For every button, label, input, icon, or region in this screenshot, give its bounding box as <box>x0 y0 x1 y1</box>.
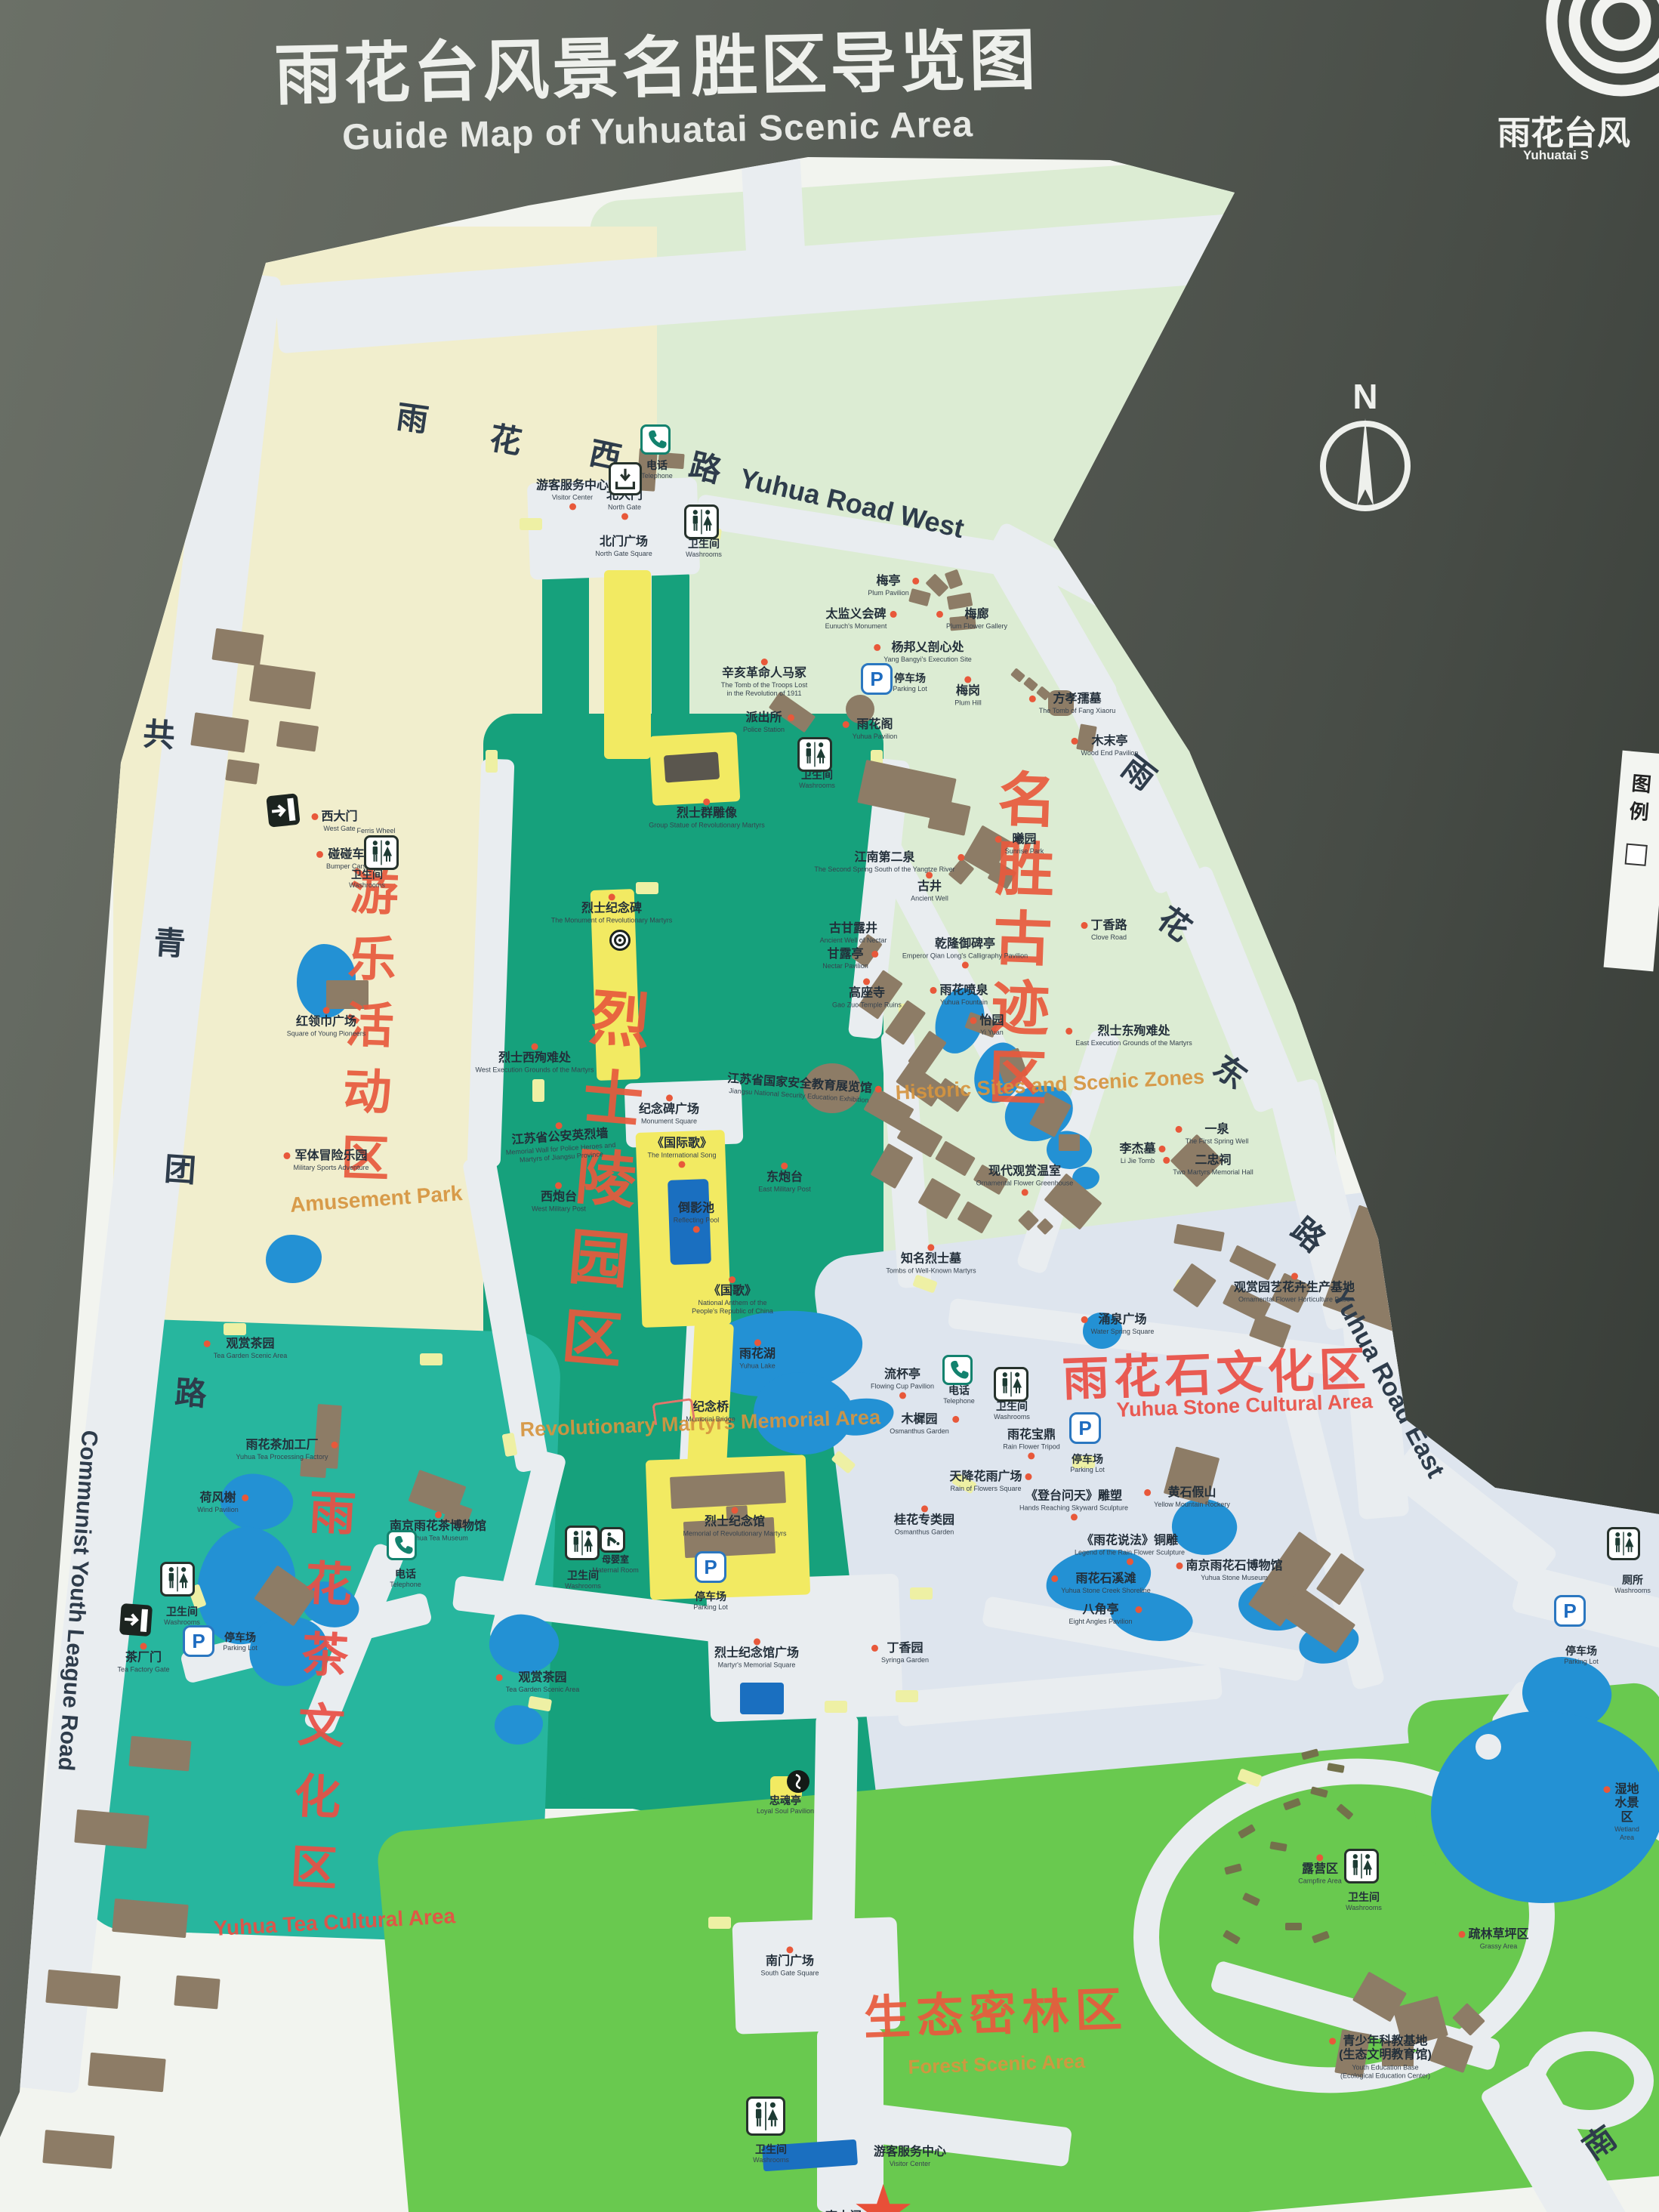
poi-text: 观赏园艺花卉生产基地Ornamental Flower Horticulture… <box>1234 1281 1355 1303</box>
poi-label: 卫生间Washrooms <box>1346 1891 1382 1912</box>
poi-name-cn: 高座寺 <box>849 986 885 1000</box>
poi-text: 天降花雨广场Rain of Flowers Square <box>949 1470 1022 1493</box>
poi-text: 青少年科教基地 (生态文明教育馆)Youth Education Base (E… <box>1339 2035 1432 2079</box>
poi-text: 江南第二泉The Second Spring South of the Yang… <box>814 851 954 874</box>
poi-dot <box>316 851 323 858</box>
poi-text: 丁香园Syringa Garden <box>881 1642 929 1664</box>
poi-label: 卫生间Washrooms <box>164 1606 200 1627</box>
poi-dot <box>890 611 896 618</box>
boundary-dash <box>520 518 542 530</box>
poi-label: 现代观赏温室Ornamental Flower Greenhouse <box>976 1165 1074 1195</box>
poi-dot <box>920 1505 927 1512</box>
poi-label: 游客服务中心Visitor Center <box>874 2146 946 2168</box>
poi-name-cn: 南门广场 <box>766 1954 814 1968</box>
poi-dot <box>1176 1563 1183 1569</box>
poi-name-cn: 木末亭 <box>1091 735 1127 748</box>
poi-name-en: Washrooms <box>799 782 835 790</box>
poi-dot <box>1329 2038 1336 2044</box>
poi-name-en: Washrooms <box>753 2156 789 2164</box>
poi-name-cn: 北门广场 <box>600 535 648 549</box>
poi-dot <box>995 836 1002 843</box>
poi-label: 碰碰车Bumper Cars <box>316 848 366 871</box>
poi-name-en: Telephone <box>641 472 673 480</box>
poi-text: 烈士纪念馆Memorial of Revolutionary Martyrs <box>683 1515 786 1538</box>
poi-name-en: Tea Factory Gate <box>117 1666 169 1674</box>
sign-header: 雨花台风景名胜区导览图 Guide Map of Yuhuatai Scenic… <box>255 25 1058 161</box>
poi-name-cn: 西炮台 <box>541 1190 577 1204</box>
poi-label: 江南第二泉The Second Spring South of the Yang… <box>814 851 964 874</box>
poi-name-cn: 派出所 <box>745 711 782 725</box>
poi-dot <box>787 1946 794 1953</box>
path-axis-mid <box>687 1322 734 1467</box>
poi-name-cn: 烈士群雕像 <box>677 807 737 820</box>
poi-text: 《登台问天》雕塑Hands Reaching Skyward Sculpture <box>1019 1489 1128 1512</box>
poi-name-cn: 流杯亭 <box>884 1368 920 1381</box>
washroom-icon <box>565 1526 600 1560</box>
poi-name-en: Telephone <box>943 1397 975 1405</box>
poi-name-en: The Tomb of Fang Xiaoru <box>1039 707 1115 715</box>
poi-label: 卫生间Washrooms <box>349 868 385 890</box>
poi-name-cn: 纪念桥 <box>692 1401 729 1415</box>
poi-text: 茶厂门Tea Factory Gate <box>117 1651 169 1674</box>
poi-name-en: Tea Garden Scenic Area <box>214 1352 288 1360</box>
poi-name-en: The First Spring Well <box>1186 1137 1249 1146</box>
poi-name-en: West Military Post <box>532 1205 586 1214</box>
poi-name-en: Memorial of Revolutionary Martyrs <box>683 1530 786 1538</box>
poi-dot <box>964 676 971 683</box>
poi-label: 烈士纪念馆Memorial of Revolutionary Martyrs <box>683 1507 786 1538</box>
poi-label: 红领巾广场Square of Young Pioneers <box>287 1007 366 1038</box>
sign-title-cn: 雨花台风景名胜区导览图 <box>255 25 1057 112</box>
poi-text: 烈士纪念碑The Monument of Revolutionary Marty… <box>551 902 673 924</box>
poi-name-en: West Execution Grounds of the Martyrs <box>476 1066 594 1075</box>
poi-dot <box>140 1643 147 1649</box>
poi-name-cn: 游客服务中心 <box>536 479 609 492</box>
poi-label: 西炮台West Military Post <box>532 1182 586 1213</box>
poi-name-cn: 桂花专类园 <box>894 1513 954 1527</box>
washroom-icon <box>1344 1849 1379 1883</box>
poi-text: 停车场Parking Lot <box>1070 1453 1105 1474</box>
poi-label: 梅岗Plum Hill <box>954 676 982 707</box>
map-panel: 游乐活动区Amusement Park烈士陵园区Revolutionary Ma… <box>0 0 1659 2212</box>
poi-name-en: South Gate Square <box>760 1970 819 1978</box>
boundary-dash <box>532 1079 544 1102</box>
poi-text: 二忠祠Two Martyrs Memorial Hall <box>1173 1154 1254 1177</box>
poi-name-en: Washrooms <box>686 551 722 559</box>
sign-title-en: Guide Map of Yuhuatai Scenic Area <box>257 102 1059 160</box>
poi-name-cn: 木樨园 <box>901 1413 937 1427</box>
poi-text: 卫生间Washrooms <box>799 769 835 790</box>
poi-text: 西炮台West Military Post <box>532 1190 586 1213</box>
road-label: 雨 <box>394 391 432 441</box>
poi-name-en: Plum Hill <box>954 699 982 708</box>
poi-name-en: Syringa Garden <box>881 1656 929 1664</box>
washroom-icon <box>746 2096 785 2136</box>
poi-text: 厕所Washrooms <box>1614 1574 1651 1595</box>
poi-dot <box>788 714 794 721</box>
poi-text: 电话Telephone <box>641 459 673 480</box>
boundary-dash <box>896 1690 918 1702</box>
poi-label: 高座寺Gao Zuo Temple Ruins <box>832 978 902 1009</box>
poi-name-en: Osmanthus Garden <box>890 1427 949 1436</box>
telephone-icon <box>942 1355 973 1385</box>
poi-dot <box>331 1442 338 1448</box>
parking-icon: P <box>861 663 893 695</box>
gate-icon <box>609 462 642 495</box>
poi-name-en: Martyr's Memorial Square <box>718 1661 796 1670</box>
poi-dot <box>311 813 318 820</box>
poi-name-cn: 乾隆御碑亭 <box>935 937 995 951</box>
poi-name-cn: 烈士东殉难处 <box>1097 1025 1170 1038</box>
poi-name-en: Yuhua Lake <box>739 1362 776 1371</box>
poi-label: 《登台问天》雕塑Hands Reaching Skyward Sculpture <box>1019 1489 1128 1520</box>
poi-dot <box>678 1162 685 1168</box>
poi-name-en: Yuhua Stone Creek Shoreline <box>1061 1587 1151 1595</box>
poi-label: 雨花湖Yuhua Lake <box>739 1339 776 1370</box>
poi-name-en: Wind Pavilion <box>197 1506 239 1514</box>
poi-text: 李杰墓Li Jie Tomb <box>1119 1143 1155 1165</box>
poi-name-en: Flowing Cup Pavilion <box>871 1383 934 1391</box>
poi-text: 方孝孺墓The Tomb of Fang Xiaoru <box>1039 693 1115 715</box>
poi-dot <box>782 1162 788 1169</box>
poi-label: 丁香园Syringa Garden <box>871 1642 929 1664</box>
exit-icon <box>264 791 303 830</box>
poi-text: 梅岗Plum Hill <box>954 684 982 707</box>
poi-text: 太监义会碑Eunuch's Monument <box>825 608 887 631</box>
poi-text: 雨花茶加工厂Yuhua Tea Processing Factory <box>236 1439 328 1461</box>
poi-name-en: Washrooms <box>349 881 385 890</box>
poi-name-cn: 曦园 <box>1012 833 1036 847</box>
poi-name-cn: 湿地水景区 <box>1614 1783 1641 1825</box>
poi-name-en: Ancient Well of Nectar <box>820 936 887 945</box>
poi-name-cn: 梅岗 <box>956 684 980 698</box>
poi-label: 观赏茶园Tea Garden Scenic Area <box>496 1671 580 1694</box>
poi-name-en: Reflecting Pool <box>674 1217 720 1225</box>
loyal-soul-pavilion-icon <box>785 1769 811 1794</box>
poi-label: 怡园Yi Yuan <box>970 1014 1004 1037</box>
zone-martyrs-col1 <box>542 572 589 723</box>
poi-name-en: Monument Square <box>641 1118 697 1126</box>
poi-text: 古甘露井Ancient Well of Nectar <box>820 922 887 945</box>
poi-name-cn: 电话 <box>395 1568 416 1580</box>
poi-name-en: Military Sports Adventure <box>293 1164 368 1172</box>
poi-dot <box>665 1094 672 1101</box>
poi-dot <box>952 1416 959 1423</box>
poi-label: 烈士纪念碑The Monument of Revolutionary Marty… <box>551 893 673 924</box>
poi-dot <box>1081 1316 1088 1323</box>
poi-text: 派出所Police Station <box>743 711 785 734</box>
poi-label: 太监义会碑Eunuch's Monument <box>825 608 897 631</box>
poi-label: 雨花阁Yuhua Pavilion <box>843 718 898 741</box>
poi-text: 木樨园Osmanthus Garden <box>890 1413 949 1436</box>
poi-dot <box>1317 1854 1324 1861</box>
poi-label: 涌泉广场Water Spring Square <box>1081 1313 1155 1336</box>
poi-text: 烈士纪念馆广场Martyr's Memorial Square <box>714 1646 799 1669</box>
poi-name-cn: 雨花阁 <box>856 718 893 732</box>
washroom-icon <box>364 835 399 870</box>
poi-name-en: Telephone <box>390 1581 421 1589</box>
poi-label: 乾隆御碑亭Emperor Qian Long's Calligraphy Pav… <box>902 937 1028 968</box>
poi-name-cn: 卫生间 <box>166 1606 198 1618</box>
poi-label: 烈士纪念馆广场Martyr's Memorial Square <box>714 1638 799 1669</box>
campfire-hut <box>1285 1923 1302 1930</box>
poi-dot <box>1176 1126 1183 1133</box>
poi-dot <box>729 1276 735 1283</box>
poi-name-cn: 雨花喷泉 <box>939 984 988 998</box>
poi-label: 流杯亭Flowing Cup Pavilion <box>871 1368 934 1399</box>
poi-dot <box>242 1495 248 1501</box>
poi-label: 木末亭Wood End Pavilion <box>1072 735 1139 757</box>
poi-label: 电话Telephone <box>641 459 673 480</box>
poi-name-cn: 忠魂亭 <box>769 1794 801 1806</box>
poi-label: 倒影池Reflecting Pool <box>674 1202 720 1232</box>
poi-name-cn: 雨花石溪滩 <box>1075 1572 1136 1586</box>
poi-name-cn: 青少年科教基地 (生态文明教育馆) <box>1339 2035 1432 2062</box>
poi-name-cn: 纪念碑广场 <box>639 1103 699 1116</box>
poi-label: 北门广场North Gate Square <box>595 535 652 558</box>
poi-name-cn: 烈士纪念馆广场 <box>714 1646 799 1660</box>
poi-text: 怡园Yi Yuan <box>979 1014 1004 1037</box>
poi-dot <box>863 978 870 985</box>
poi-dot <box>323 1007 330 1013</box>
poi-name-cn: 卫生间 <box>1348 1891 1380 1903</box>
poi-name-cn: 停车场 <box>1072 1453 1103 1465</box>
poi-name-cn: 卫生间 <box>351 868 383 881</box>
logo-text-en: Yuhuatai S <box>1523 148 1589 163</box>
poi-name-en: Wetland Area <box>1614 1825 1641 1842</box>
poi-text: 电话Telephone <box>943 1384 975 1405</box>
poi-text: 烈士群雕像Group Statue of Revolutionary Marty… <box>649 807 765 829</box>
parking-icon: P <box>1069 1412 1101 1444</box>
poi-name-cn: 西大门 <box>321 810 357 824</box>
poi-name-cn: 停车场 <box>1565 1645 1597 1657</box>
poi-label: 烈士东殉难处East Execution Grounds of the Mart… <box>1065 1025 1192 1047</box>
poi-name-cn: 梅廊 <box>964 608 988 622</box>
poi-name-cn: 露营区 <box>1302 1862 1338 1876</box>
poi-text: 停车场Parking Lot <box>223 1631 257 1652</box>
parking-icon: P <box>695 1551 726 1583</box>
poi-name-en: Washrooms <box>1346 1904 1382 1912</box>
poi-name-cn: 碰碰车 <box>328 848 364 862</box>
poi-name-cn: 电话 <box>646 459 668 471</box>
poi-text: 《国际歌》The International Song <box>647 1137 716 1159</box>
poi-dot <box>1163 1157 1170 1164</box>
ring-forest-small <box>1525 2032 1654 2130</box>
poi-label: 军体冒险乐园Military Sports Adventure <box>283 1149 368 1172</box>
building <box>1059 1134 1080 1151</box>
poi-label: 南京雨花石博物馆Yuhua Stone Museum <box>1176 1560 1282 1582</box>
poi-name-cn: 雨花宝鼎 <box>1007 1428 1056 1442</box>
poi-text: 辛亥革命人马冢The Tomb of the Troops Lost in th… <box>721 667 807 698</box>
poi-name-en: Yuhua Tea Processing Factory <box>236 1453 328 1461</box>
zone-label-cn-6: 生态密林区 <box>862 1971 1129 2048</box>
poi-name-cn: 倒影池 <box>678 1202 714 1215</box>
road-axis-south <box>812 1714 858 1934</box>
poi-text: 烈士西殉难处West Execution Grounds of the Mart… <box>476 1051 594 1074</box>
poi-text: 雨花石溪滩Yuhua Stone Creek Shoreline <box>1061 1572 1151 1595</box>
poi-name-en: East Military Post <box>758 1186 811 1194</box>
poi-label: 烈士西殉难处West Execution Grounds of the Mart… <box>476 1043 594 1074</box>
poi-dot <box>761 659 768 665</box>
poi-name-en: Yuhua Stone Museum <box>1201 1574 1268 1582</box>
poi-name-cn: 《登台问天》雕塑 <box>1025 1489 1122 1503</box>
poi-name-cn: 天降花雨广场 <box>949 1470 1022 1484</box>
poi-name-en: Washrooms <box>994 1413 1030 1421</box>
road-north-stub <box>741 153 805 262</box>
boundary-dash <box>825 1701 847 1713</box>
poi-name-en: The Tomb of the Troops Lost in the Revol… <box>721 681 807 698</box>
parking-icon: P <box>1554 1595 1586 1627</box>
poi-name-cn: 《国歌》 <box>708 1285 757 1298</box>
poi-name-cn: 观赏园艺花卉生产基地 <box>1234 1281 1355 1294</box>
poi-label: 李杰墓Li Jie Tomb <box>1119 1143 1165 1165</box>
poi-name-cn: 军体冒险乐园 <box>294 1149 367 1163</box>
poi-text: 南门广场South Gate Square <box>760 1954 819 1977</box>
poi-name-en: Campfire Area <box>1298 1877 1342 1886</box>
poi-label: 停车场Parking Lot <box>1564 1645 1599 1666</box>
poi-dot <box>930 987 936 994</box>
poi-label: 二忠祠Two Martyrs Memorial Hall <box>1163 1154 1254 1177</box>
poi-dot <box>753 1638 760 1645</box>
poi-name-en: Wood End Pavilion <box>1081 749 1139 757</box>
legend-symbol-box <box>1625 844 1648 866</box>
pool-martyr-square <box>740 1683 784 1714</box>
poi-dot <box>1159 1146 1166 1152</box>
poi-name-en: Osmanthus Garden <box>895 1529 954 1537</box>
poi-label: 西大门West Gate <box>311 810 357 833</box>
poi-name-en: North Gate Square <box>595 550 652 558</box>
poi-text: 北门广场North Gate Square <box>595 535 652 558</box>
poi-dot <box>1070 1514 1077 1521</box>
path-axis-north <box>604 570 651 759</box>
poi-text: 停车场Parking Lot <box>693 1590 728 1612</box>
poi-name-cn: 卫生间 <box>688 538 720 550</box>
washroom-icon <box>684 504 719 539</box>
poi-label: 曦园Sunrise Park <box>995 833 1044 856</box>
poi-name-en: Tea Garden Scenic Area <box>506 1686 580 1694</box>
boundary-dash <box>486 750 498 773</box>
poi-dot <box>754 1339 760 1346</box>
poi-name-cn: 母婴室 <box>602 1555 629 1566</box>
poi-name-en: Parking Lot <box>223 1644 257 1652</box>
poi-name-cn: 黄石假山 <box>1167 1486 1216 1500</box>
poi-dot <box>1291 1273 1297 1279</box>
poi-name-cn: 厕所 <box>1622 1574 1643 1586</box>
poi-label: 雨花石溪滩Yuhua Stone Creek Shoreline <box>1051 1572 1151 1595</box>
poi-label: 甘露亭Nectar Pavilion <box>822 948 878 970</box>
exit-icon <box>117 1601 154 1638</box>
poi-dot <box>928 1244 935 1251</box>
poi-name-cn: 烈士纪念馆 <box>705 1515 765 1529</box>
poi-name-en: Parking Lot <box>1070 1466 1105 1474</box>
poi-name-cn: 甘露亭 <box>827 948 863 961</box>
poi-label: 南门广场South Gate Square <box>760 1946 819 1977</box>
poi-dot <box>731 1507 738 1513</box>
poi-label: 派出所Police Station <box>743 711 794 734</box>
building <box>88 2053 165 2093</box>
poi-text: 杨邦乂剖心处Yang Bangyi's Execution Site <box>883 641 972 664</box>
poi-name-en: Legend of the Rain Flower Sculpture <box>1075 1549 1185 1557</box>
poi-name-cn: 丁香园 <box>887 1642 923 1655</box>
poi-label: 梅亭Plum Pavilion <box>868 575 919 597</box>
poi-text: 湿地水景区Wetland Area <box>1614 1783 1641 1842</box>
poi-text: 碰碰车Bumper Cars <box>326 848 366 871</box>
poi-text: 现代观赏温室Ornamental Flower Greenhouse <box>976 1165 1074 1187</box>
poi-name-cn: 停车场 <box>894 672 926 684</box>
building <box>74 1809 149 1849</box>
poi-name-cn: 观赏茶园 <box>226 1337 274 1351</box>
poi-dot <box>899 1393 905 1399</box>
poi-text: 乾隆御碑亭Emperor Qian Long's Calligraphy Pav… <box>902 937 1028 960</box>
poi-label: 卫生间Washrooms <box>994 1400 1030 1421</box>
poi-name-en: Yi Yuan <box>980 1029 1004 1037</box>
poi-text: 观赏茶园Tea Garden Scenic Area <box>506 1671 580 1694</box>
poi-dot <box>1022 1189 1028 1196</box>
poi-dot <box>283 1152 290 1159</box>
poi-text: 雨花阁Yuhua Pavilion <box>853 718 898 741</box>
poi-name-en: Sunrise Park <box>1005 847 1044 856</box>
poi-dot <box>1051 1575 1058 1582</box>
poi-label: 杨邦乂剖心处Yang Bangyi's Execution Site <box>874 641 972 664</box>
poi-name-cn: 二忠祠 <box>1195 1154 1231 1168</box>
poi-name-cn: 辛亥革命人马冢 <box>722 667 806 680</box>
poi-name-en: Grassy Area <box>1480 1942 1518 1951</box>
building <box>670 1471 786 1509</box>
poi-name-cn: 梅亭 <box>876 575 900 588</box>
poi-name-cn: 一泉 <box>1204 1123 1229 1137</box>
poi-text: 木末亭Wood End Pavilion <box>1081 735 1139 757</box>
poi-label: 古井Ancient Well <box>911 872 948 902</box>
poi-label: 雨花喷泉Yuhua Fountain <box>930 984 988 1007</box>
poi-dot <box>703 798 710 805</box>
poi-name-en: Yuhua Tea Museum <box>408 1535 467 1543</box>
poi-dot <box>556 1122 563 1130</box>
island-wetland <box>1476 1734 1501 1760</box>
poi-name-en: Visitor Center <box>890 2160 930 2168</box>
poi-label: 《国歌》National Anthem of the People's Repu… <box>692 1276 773 1316</box>
poi-name-en: Maternal Room <box>592 1566 639 1575</box>
poi-dot <box>608 893 615 900</box>
poi-name-en: Yuhua Pavilion <box>853 733 898 741</box>
telephone-icon <box>640 424 671 455</box>
poi-name-en: Hands Reaching Skyward Sculpture <box>1019 1504 1128 1513</box>
poi-text: 丁香路Clove Road <box>1090 919 1127 942</box>
poi-name-cn: 太监义会碑 <box>825 608 886 622</box>
poi-label: 电话Telephone <box>390 1568 421 1589</box>
poi-label: 烈士群雕像Group Statue of Revolutionary Marty… <box>649 798 765 829</box>
poi-dot <box>1065 1028 1072 1035</box>
poi-text: 卫生间Washrooms <box>349 868 385 890</box>
poi-text: 黄石假山Yellow Mountain Rockery <box>1154 1486 1230 1509</box>
poi-name-en: Visitor Center <box>552 494 593 502</box>
poi-dot <box>958 854 965 861</box>
poi-name-en: Ancient Well <box>911 895 948 903</box>
road-label: 路 <box>174 1367 208 1415</box>
boundary-dash <box>224 1323 246 1335</box>
poi-name-en: Gao Zuo Temple Ruins <box>832 1001 902 1010</box>
poi-text: 曦园Sunrise Park <box>1005 833 1044 856</box>
poi-label: 厕所Washrooms <box>1614 1574 1651 1595</box>
building <box>276 721 319 752</box>
poi-text: 雨花喷泉Yuhua Fountain <box>939 984 988 1007</box>
poi-label: 卫生间Washrooms <box>686 538 722 559</box>
poi-name-en: Police Station <box>743 726 785 734</box>
poi-dot <box>912 578 919 585</box>
poi-text: 东炮台East Military Post <box>758 1171 811 1193</box>
poi-text: 卫生间Washrooms <box>1346 1891 1382 1912</box>
poi-text: 八角亭Eight Angles Pavilion <box>1068 1603 1132 1626</box>
poi-name-cn: 停车场 <box>224 1631 256 1643</box>
